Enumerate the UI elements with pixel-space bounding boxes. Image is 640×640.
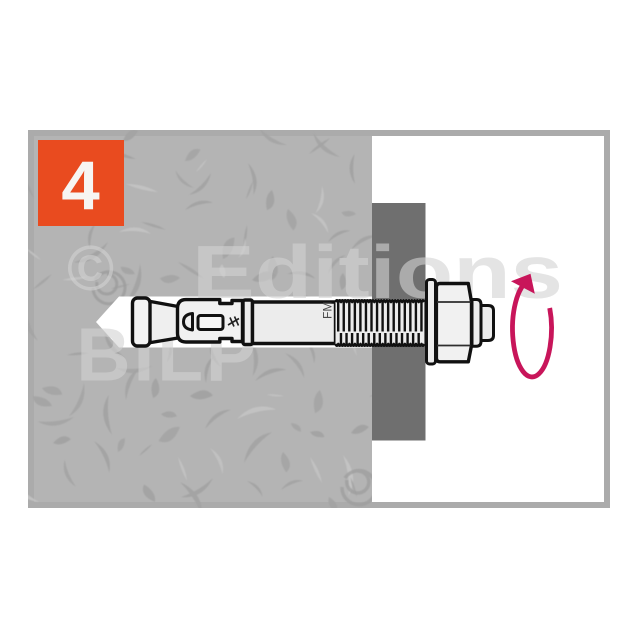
svg-text:FM: FM xyxy=(321,302,335,319)
svg-text:©: © xyxy=(67,232,114,304)
svg-text:4: 4 xyxy=(61,147,99,224)
